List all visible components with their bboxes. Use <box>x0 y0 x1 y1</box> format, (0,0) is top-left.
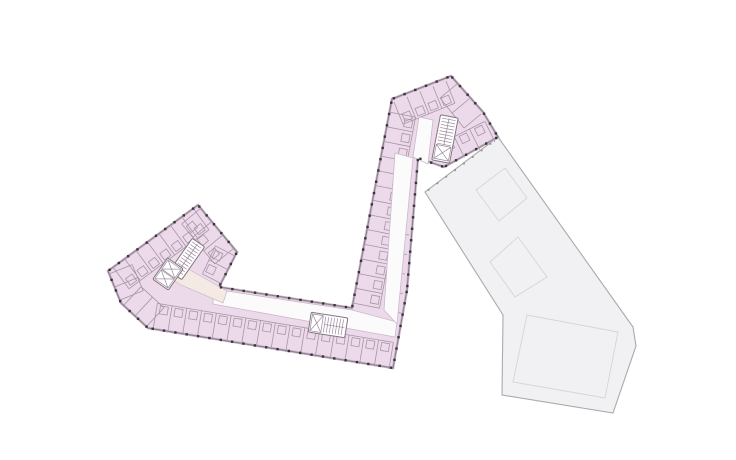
gray-wing <box>425 137 636 413</box>
floor-plan-drawing <box>0 0 736 460</box>
floor-plan-page <box>0 0 736 460</box>
